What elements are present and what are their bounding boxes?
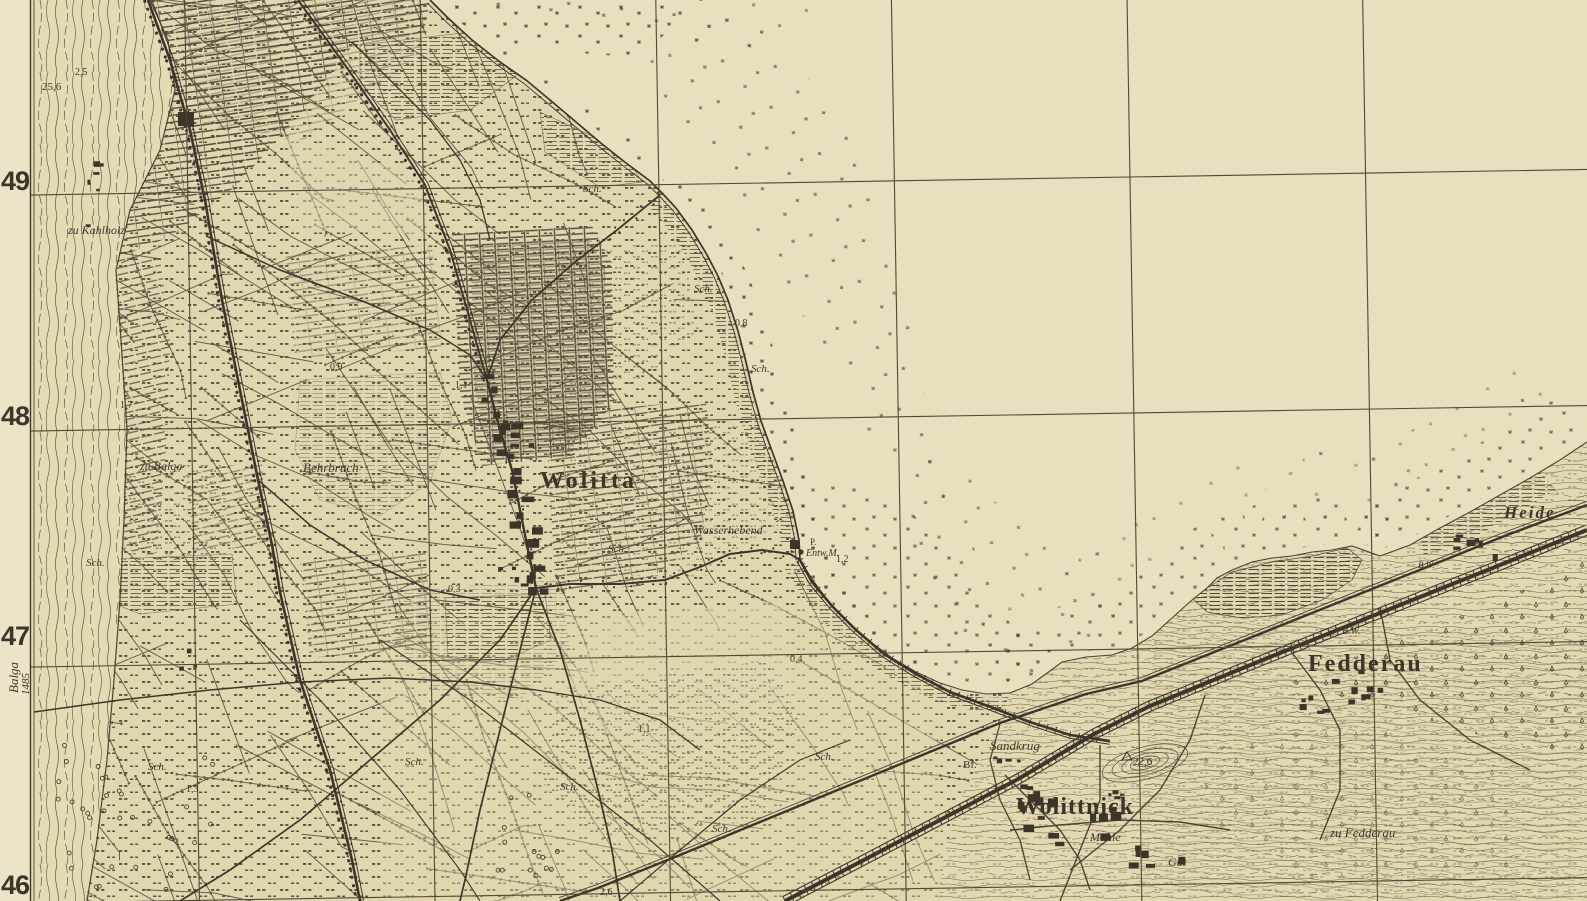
svg-text:Wolittnick: Wolittnick — [1016, 794, 1134, 820]
svg-text:Sch.: Sch. — [560, 781, 579, 793]
svg-text:Sch.: Sch. — [815, 751, 834, 763]
svg-text:0,3: 0,3 — [448, 584, 461, 595]
svg-text:2,6: 2,6 — [600, 887, 613, 898]
svg-text:1,1: 1,1 — [638, 724, 651, 735]
svg-text:Sandkrug: Sandkrug — [990, 738, 1040, 753]
svg-text:0,9: 0,9 — [330, 362, 343, 373]
svg-text:25,6: 25,6 — [42, 81, 62, 93]
svg-text:1,7: 1,7 — [120, 400, 133, 411]
svg-text:B.W.: B.W. — [1342, 626, 1361, 637]
svg-text:Mühle: Mühle — [1089, 830, 1121, 844]
svg-text:Bf.: Bf. — [963, 759, 977, 771]
svg-text:48: 48 — [1, 401, 30, 431]
svg-text:Sch.: Sch. — [148, 761, 167, 773]
svg-text:zu Balga: zu Balga — [139, 459, 182, 473]
svg-text:49: 49 — [1, 166, 30, 196]
svg-text:2,5: 2,5 — [75, 67, 88, 78]
svg-text:Sch.: Sch. — [751, 363, 770, 375]
svg-text:Sch.: Sch. — [712, 823, 731, 835]
svg-text:Fedderau: Fedderau — [1308, 651, 1423, 677]
svg-text:Wasserhebend: Wasserhebend — [694, 523, 764, 537]
svg-text:Balga: Balga — [6, 661, 21, 693]
svg-text:zu Kahlholz: zu Kahlholz — [67, 223, 125, 237]
svg-text:Sch.: Sch. — [405, 756, 424, 768]
svg-text:Sch.: Sch. — [608, 543, 627, 555]
svg-text:22,6: 22,6 — [1133, 756, 1153, 768]
svg-text:B.W.: B.W. — [1418, 560, 1435, 570]
svg-text:0,8: 0,8 — [735, 318, 748, 329]
svg-text:Sch.: Sch. — [694, 283, 713, 295]
svg-text:1485: 1485 — [20, 673, 32, 696]
svg-text:Heide: Heide — [1503, 503, 1556, 522]
svg-text:0,4: 0,4 — [790, 654, 803, 665]
svg-text:P.: P. — [810, 537, 816, 547]
svg-text:47: 47 — [1, 621, 29, 651]
svg-text:Sch.: Sch. — [583, 183, 602, 195]
svg-text:Sch.: Sch. — [86, 557, 105, 569]
svg-text:Behrbruch: Behrbruch — [303, 460, 359, 475]
svg-text:Entw.M.: Entw.M. — [805, 548, 839, 559]
svg-text:1,2: 1,2 — [836, 554, 849, 565]
svg-text:Wolitta: Wolitta — [540, 468, 637, 494]
svg-text:Gut: Gut — [1168, 855, 1187, 869]
svg-text:1,1: 1,1 — [455, 380, 468, 391]
svg-text:1,3: 1,3 — [186, 784, 199, 795]
svg-text:zu Fedderau: zu Fedderau — [1329, 825, 1396, 840]
svg-text:46: 46 — [1, 870, 30, 900]
